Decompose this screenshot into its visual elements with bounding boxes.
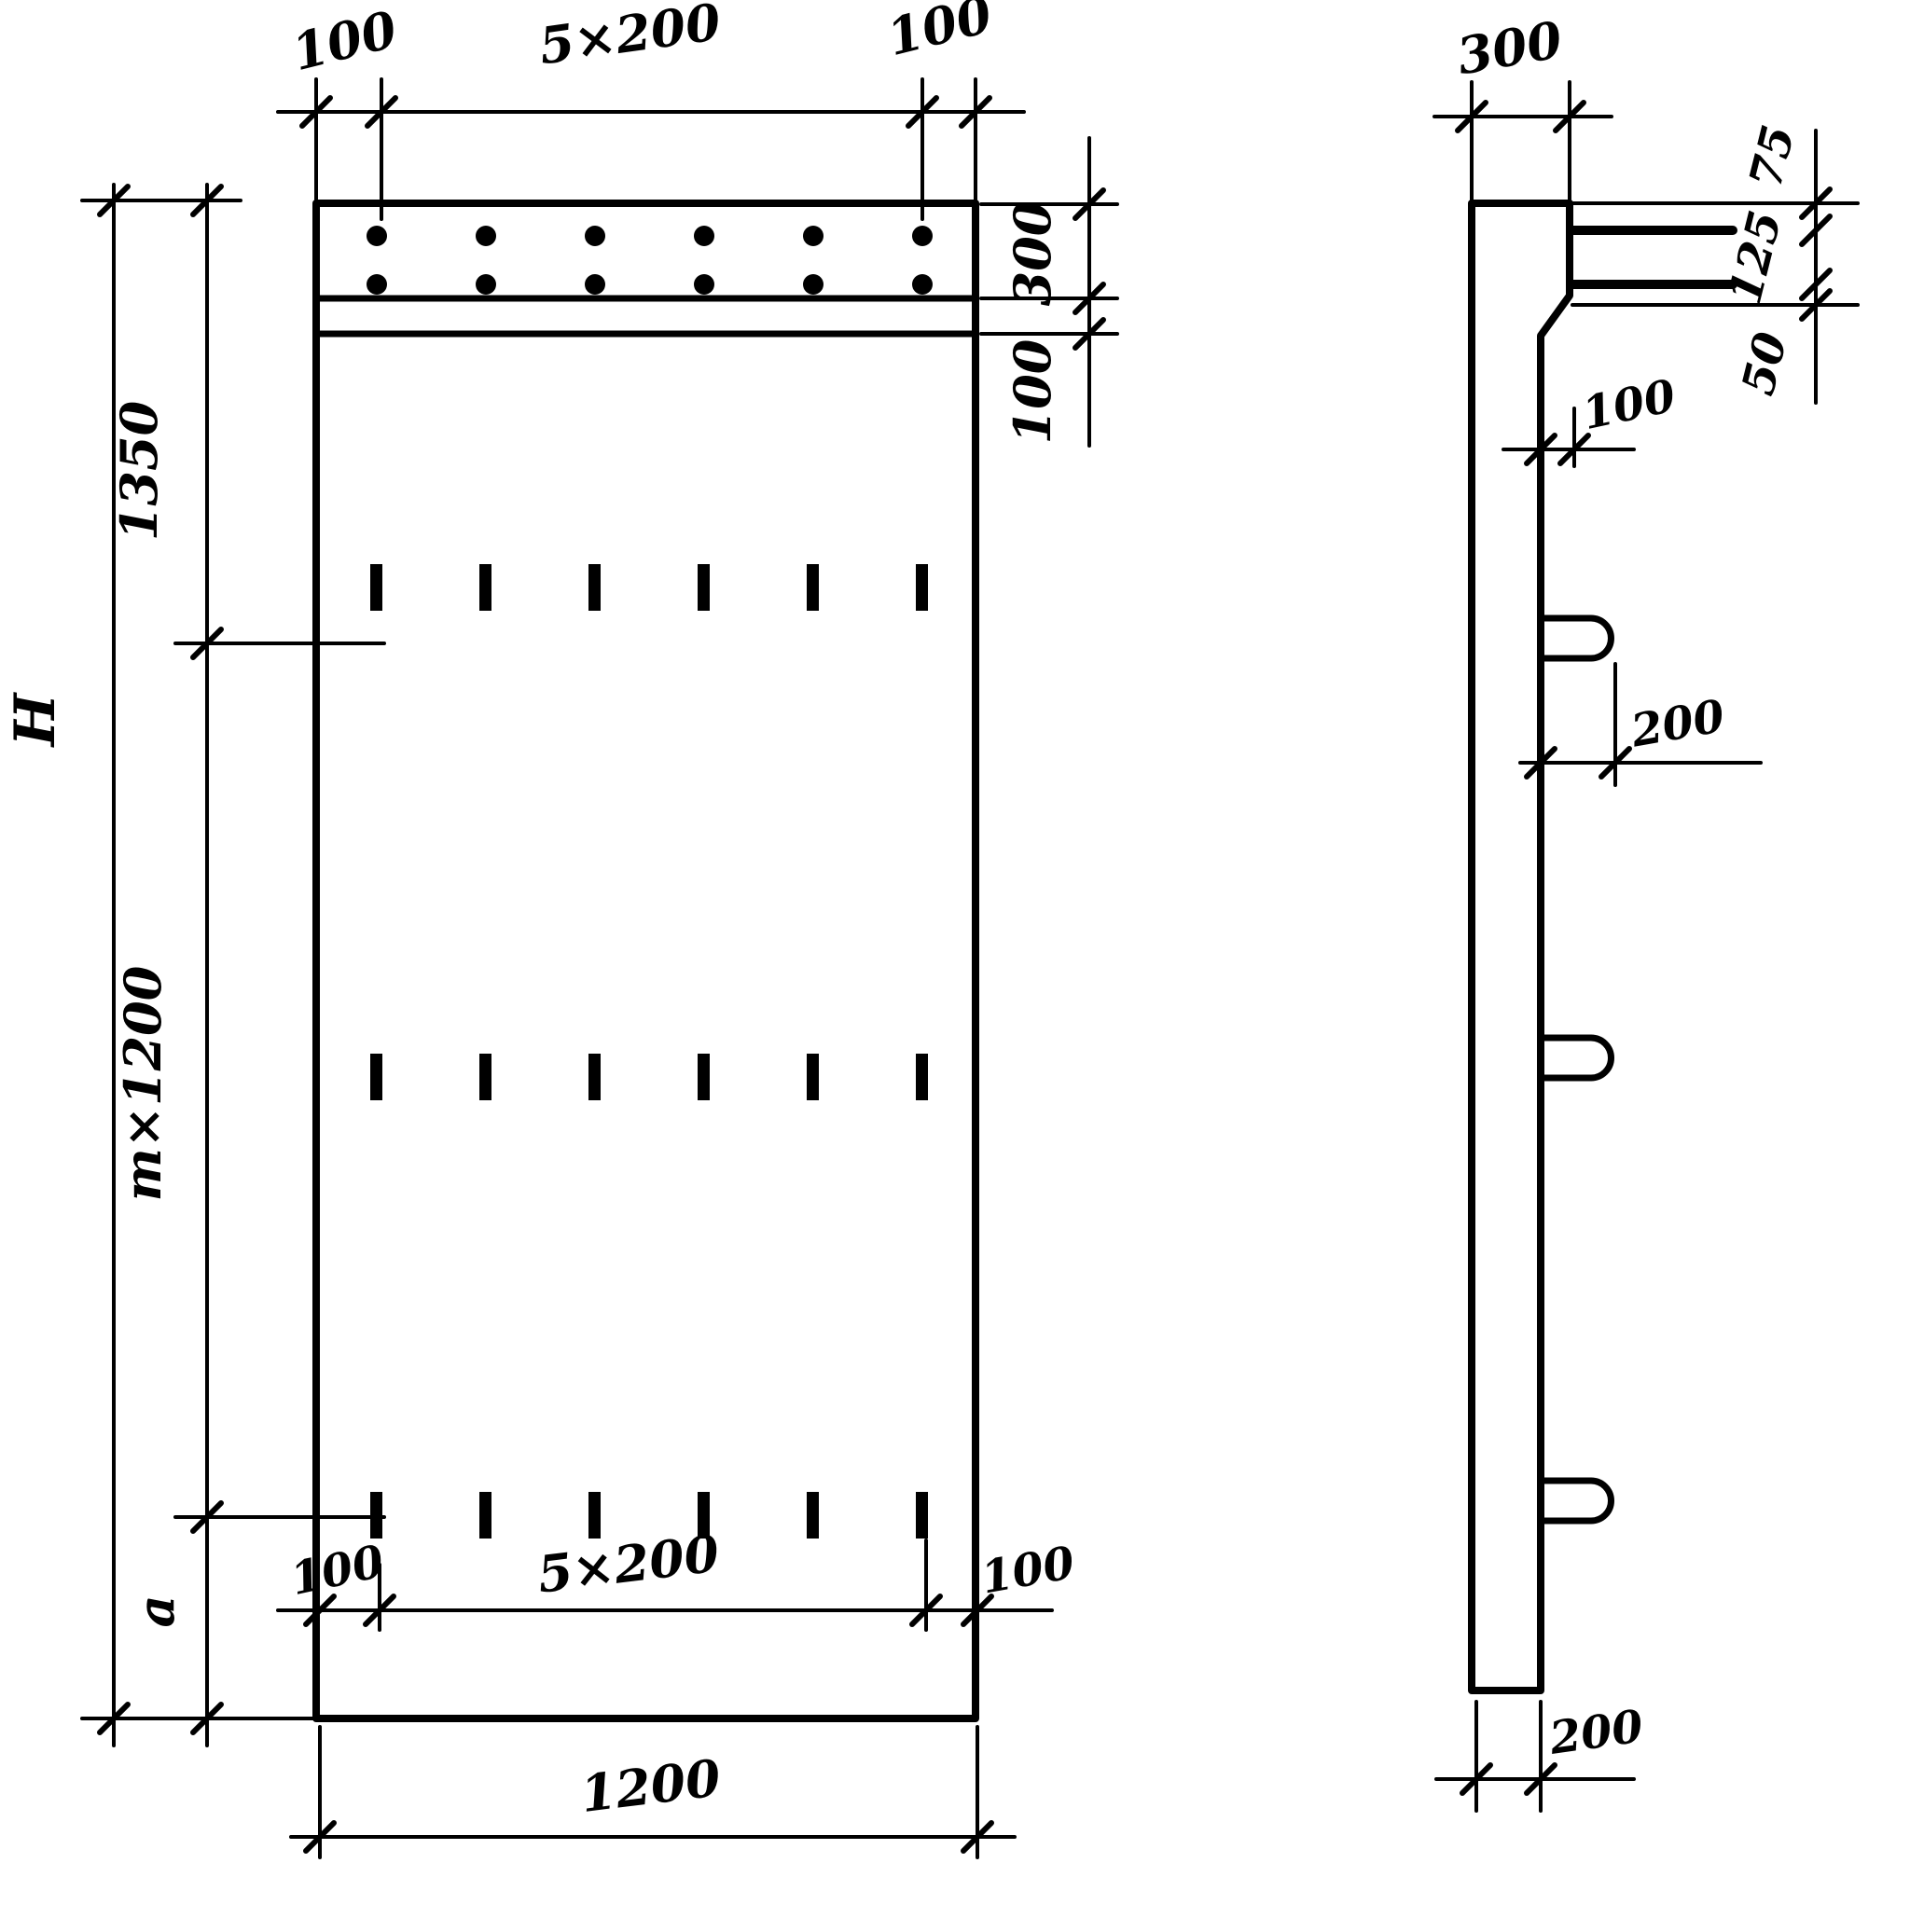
front-right-dimension: 300 100 [981, 138, 1117, 446]
front-bottom-dimension: 1200 [291, 1727, 1015, 1857]
bolt-dot [803, 226, 824, 246]
dim-label-chain-top: 75 [1739, 120, 1805, 193]
bolt-dot [694, 274, 714, 295]
bolt-dot [476, 274, 496, 295]
dim-label-loop-length: 200 [1626, 690, 1728, 758]
dim-label-side-thickness: 300 [1453, 9, 1567, 87]
rebar-dash [916, 1492, 928, 1539]
rebar-dash [370, 564, 382, 611]
panel-outline [316, 203, 976, 1718]
rebar-dash [479, 564, 491, 611]
dim-label-upper-height: 1350 [109, 401, 169, 541]
side-top-dimension: 300 [1434, 9, 1612, 200]
bolt-dot [912, 274, 933, 295]
dim-label-chain-middle: 125 [1719, 206, 1792, 310]
side-bottom-dimension: 200 [1436, 1700, 1646, 1811]
dim-label-top-right-margin: 100 [881, 0, 998, 67]
dim-label-chain-bottom: 50 [1732, 327, 1797, 400]
bolt-dot [694, 226, 714, 246]
rebar-dash [807, 1054, 819, 1100]
dim-label-band-offset: 100 [1003, 339, 1062, 445]
rebar-dash [370, 1054, 382, 1100]
dim-label-bottom-spacing: 5×200 [534, 1523, 723, 1604]
bolt-dot [585, 226, 605, 246]
side-view: 300 75 125 50 100 200 [1434, 9, 1858, 1811]
bolt-dot [912, 226, 933, 246]
rebar-dash [588, 1492, 601, 1539]
dim-label-top-spacing: 5×200 [535, 0, 725, 76]
dim-label-middle-height: m×1200 [113, 966, 173, 1202]
dim-label-bar-offset: 100 [1578, 370, 1681, 441]
bolt-dot [585, 274, 605, 295]
bolt-dot [367, 274, 387, 295]
side-right-chain-dimension: 75 125 50 [1719, 120, 1830, 403]
dim-label-top-left-margin: 100 [286, 0, 403, 82]
side-bar-offset-dimension: 100 [1503, 370, 1681, 466]
dim-label-bottom-left-margin: 100 [286, 1536, 389, 1607]
side-loop-dimension: 200 [1520, 664, 1761, 785]
rebar-dash [807, 1492, 819, 1539]
dim-label-lower-height: a [126, 1595, 186, 1628]
dim-label-bottom-thickness: 200 [1545, 1700, 1646, 1765]
dim-label-bottom-right-margin: 100 [977, 1537, 1078, 1605]
rebar-dash [916, 1054, 928, 1100]
technical-drawing: 100 5×200 100 300 100 [0, 0, 1910, 1932]
lifting-loop [1541, 618, 1611, 658]
bolt-dot [803, 274, 824, 295]
rebar-dash [916, 564, 928, 611]
dim-label-overall-height: H [3, 691, 68, 748]
rebar-dash [698, 564, 710, 611]
rebar-dash [588, 1054, 601, 1100]
bolt-dot [367, 226, 387, 246]
panel-profile [1472, 203, 1570, 1690]
front-bottom-inner-dimension: 100 5×200 100 [278, 1523, 1078, 1630]
dim-label-overall-width: 1200 [577, 1747, 724, 1824]
rebar-dash-rows [370, 564, 928, 1539]
front-top-dimension: 100 5×200 100 [278, 0, 1024, 219]
rebar-dash [588, 564, 601, 611]
bolt-dot [476, 226, 496, 246]
front-left-dimension: 1350 H m×1200 a [3, 185, 384, 1746]
dim-label-band-height: 300 [1003, 201, 1062, 307]
rebar-dash [479, 1492, 491, 1539]
lifting-loop [1541, 1038, 1612, 1078]
drawing-sheet: 100 5×200 100 300 100 [0, 0, 1910, 1932]
rebar-dash [479, 1054, 491, 1100]
rebar-dash [698, 1054, 710, 1100]
rebar-dash [807, 564, 819, 611]
front-view: 100 5×200 100 300 100 [3, 0, 1117, 1857]
anchor-bolts [367, 226, 933, 295]
lifting-loop [1541, 1481, 1612, 1521]
